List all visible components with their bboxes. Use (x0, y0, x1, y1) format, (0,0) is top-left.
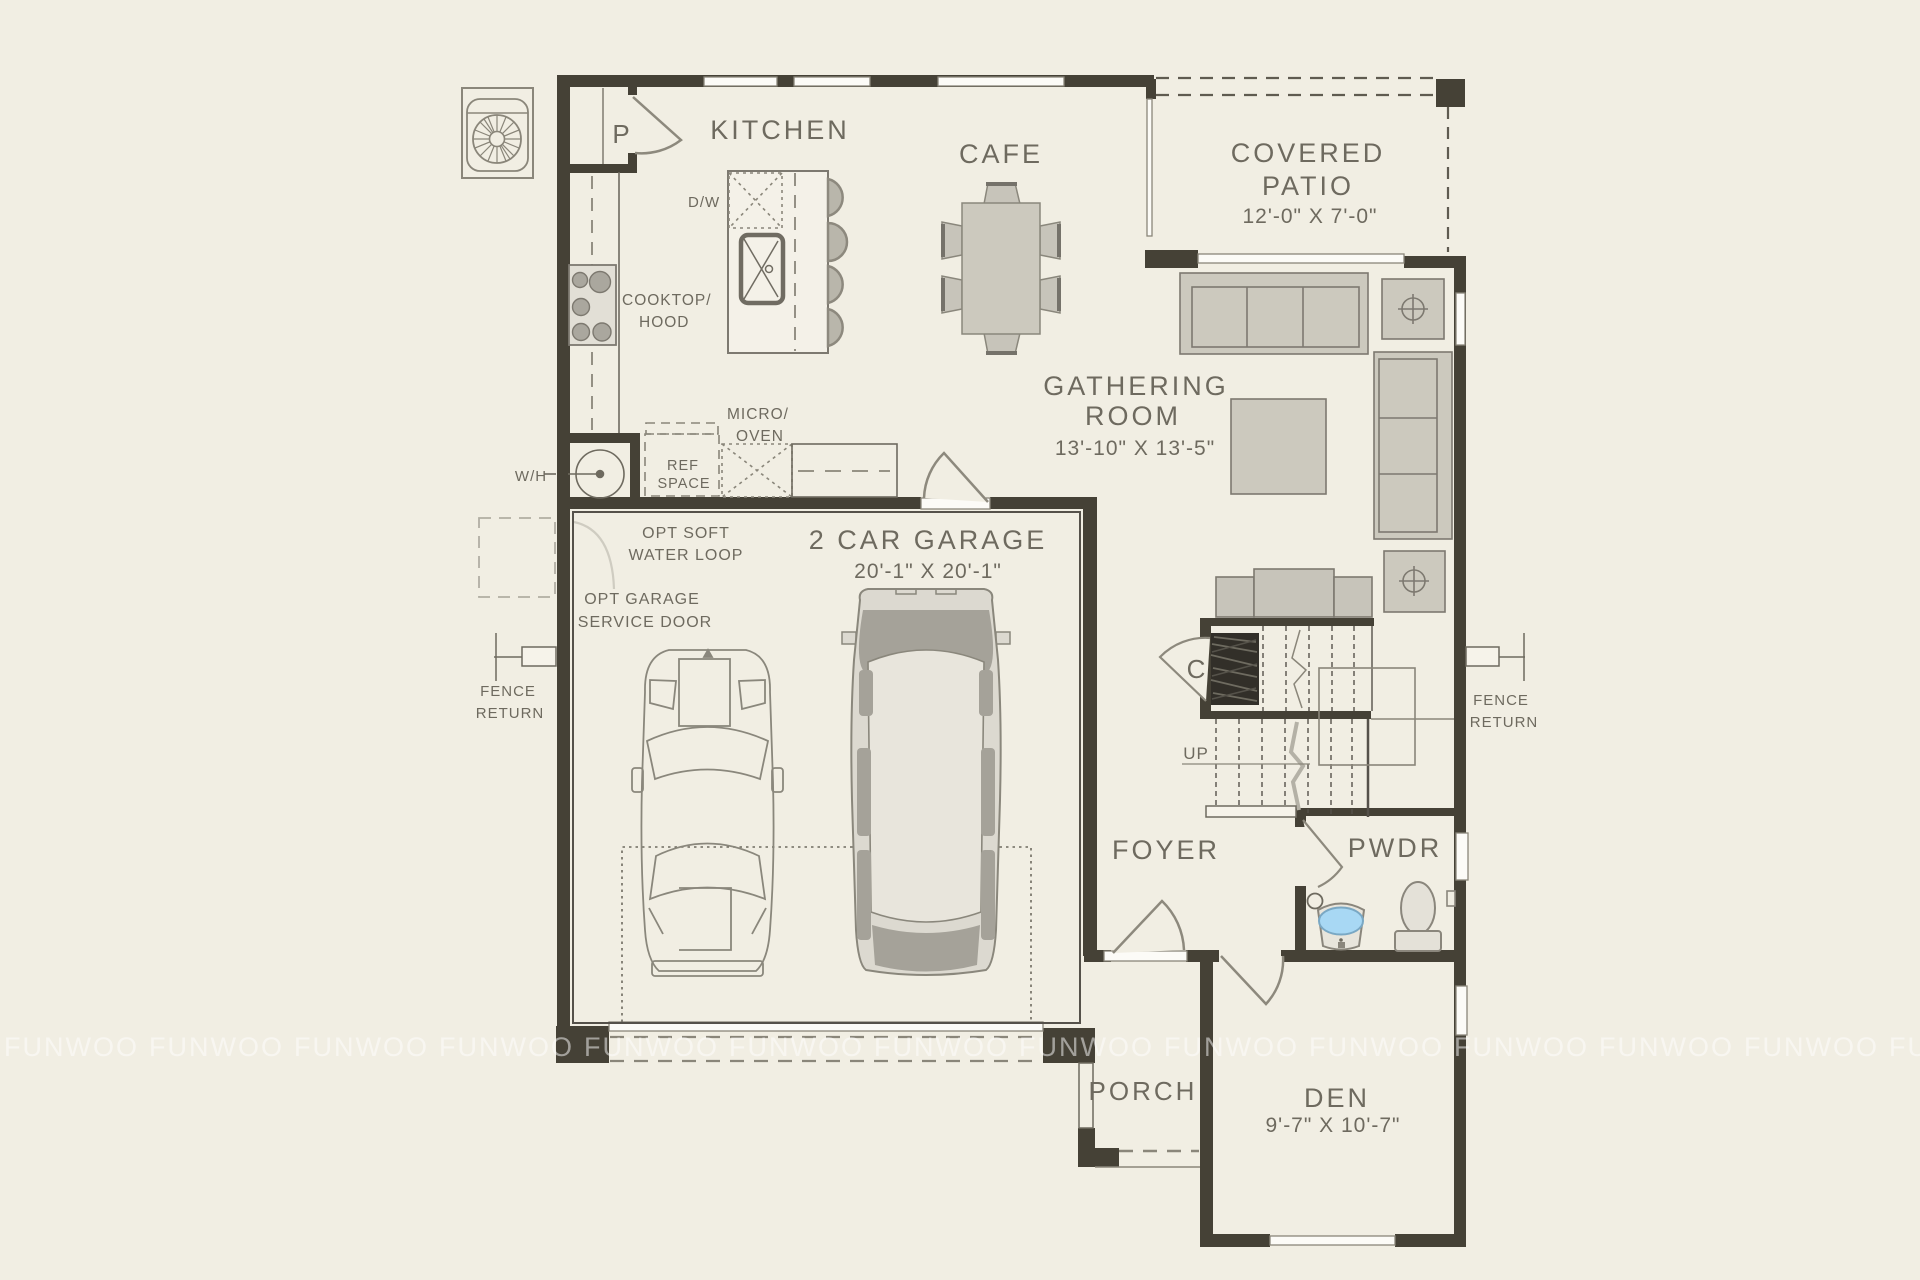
svg-text:CAFE: CAFE (959, 139, 1043, 169)
svg-text:FUNWOO: FUNWOO (1309, 1032, 1444, 1062)
svg-text:KITCHEN: KITCHEN (710, 115, 850, 145)
svg-text:C: C (1187, 654, 1206, 684)
svg-text:FUNWOO: FUNWOO (1019, 1032, 1154, 1062)
svg-text:FENCE: FENCE (1473, 692, 1529, 709)
svg-text:FUNWOO: FUNWOO (149, 1032, 284, 1062)
svg-text:PWDR: PWDR (1348, 833, 1443, 863)
svg-text:P: P (612, 119, 629, 149)
svg-text:FUNWOO: FUNWOO (729, 1032, 864, 1062)
svg-text:13'-10" X 13'-5": 13'-10" X 13'-5" (1055, 437, 1215, 460)
svg-text:FUNWOO: FUNWOO (584, 1032, 719, 1062)
svg-text:REF: REF (667, 458, 699, 474)
svg-text:HOOD: HOOD (639, 314, 690, 331)
svg-text:SPACE: SPACE (657, 476, 710, 492)
svg-text:GATHERING: GATHERING (1043, 371, 1229, 401)
svg-text:OVEN: OVEN (736, 428, 784, 445)
svg-text:FUNWOO: FUNWOO (294, 1032, 429, 1062)
svg-text:SERVICE DOOR: SERVICE DOOR (578, 614, 712, 631)
svg-text:20'-1" X 20'-1": 20'-1" X 20'-1" (854, 560, 1002, 583)
svg-text:D/W: D/W (688, 194, 720, 211)
svg-text:FUNWOO: FUNWOO (1454, 1032, 1589, 1062)
svg-text:RETURN: RETURN (476, 705, 545, 722)
svg-text:2 CAR GARAGE: 2 CAR GARAGE (809, 525, 1048, 555)
svg-text:FUNWOO: FUNWOO (1744, 1032, 1879, 1062)
svg-text:COVERED: COVERED (1231, 138, 1386, 168)
svg-text:ROOM: ROOM (1085, 401, 1181, 431)
svg-text:RETURN: RETURN (1470, 714, 1539, 731)
svg-text:UP: UP (1183, 744, 1209, 763)
svg-text:12'-0" X 7'-0": 12'-0" X 7'-0" (1243, 205, 1378, 228)
svg-text:COOKTOP/: COOKTOP/ (622, 292, 712, 309)
svg-text:FUNWOO: FUNWOO (1164, 1032, 1299, 1062)
svg-text:FUNWOO: FUNWOO (1889, 1032, 1920, 1062)
svg-text:FUNWOO: FUNWOO (1599, 1032, 1734, 1062)
svg-text:DEN: DEN (1304, 1083, 1370, 1113)
svg-text:FENCE: FENCE (480, 683, 536, 700)
svg-text:WATER LOOP: WATER LOOP (629, 547, 744, 564)
svg-text:FUNWOO: FUNWOO (874, 1032, 1009, 1062)
svg-text:W/H: W/H (515, 468, 547, 485)
svg-text:9'-7" X 10'-7": 9'-7" X 10'-7" (1266, 1114, 1401, 1137)
svg-text:FUNWOO: FUNWOO (439, 1032, 574, 1062)
svg-text:FOYER: FOYER (1112, 835, 1220, 865)
svg-text:OPT SOFT: OPT SOFT (642, 525, 730, 542)
svg-text:MICRO/: MICRO/ (727, 406, 789, 423)
svg-text:OPT GARAGE: OPT GARAGE (584, 591, 700, 608)
svg-text:PORCH: PORCH (1089, 1076, 1198, 1106)
svg-text:PATIO: PATIO (1262, 171, 1354, 201)
svg-text:FUNWOO: FUNWOO (4, 1032, 139, 1062)
